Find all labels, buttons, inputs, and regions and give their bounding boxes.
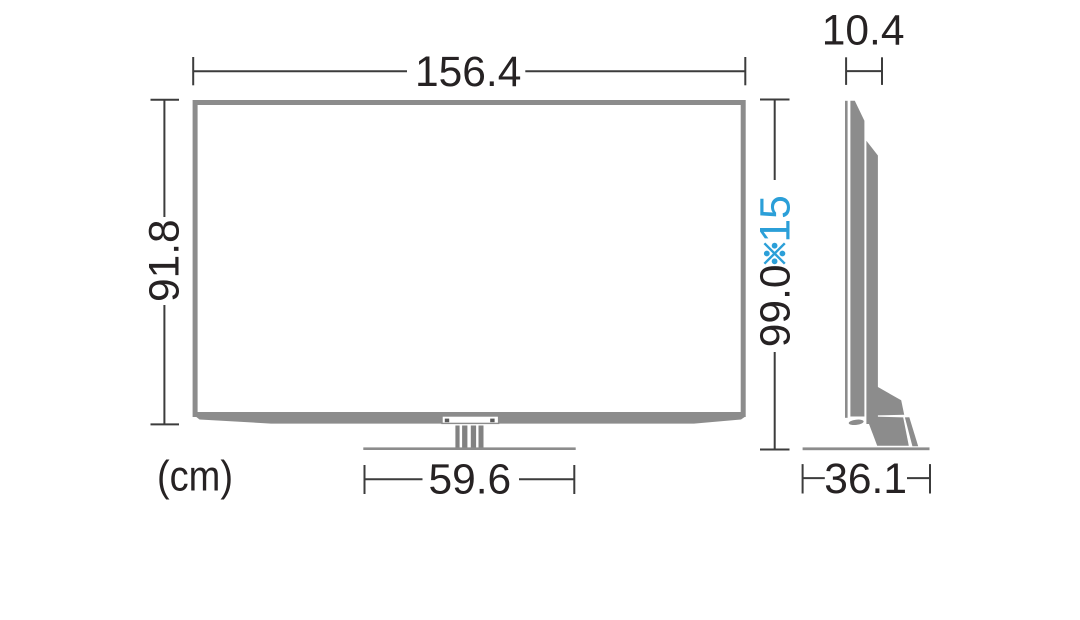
svg-text:(cm): (cm) <box>157 454 233 501</box>
svg-text:91.8: 91.8 <box>141 219 188 302</box>
svg-text:36.1: 36.1 <box>824 456 907 503</box>
svg-text:99.0: 99.0 <box>752 264 799 347</box>
svg-text:10.4: 10.4 <box>822 8 905 55</box>
svg-text:156.4: 156.4 <box>415 49 521 96</box>
svg-text:59.6: 59.6 <box>428 456 511 503</box>
svg-text:15: 15 <box>752 195 799 242</box>
